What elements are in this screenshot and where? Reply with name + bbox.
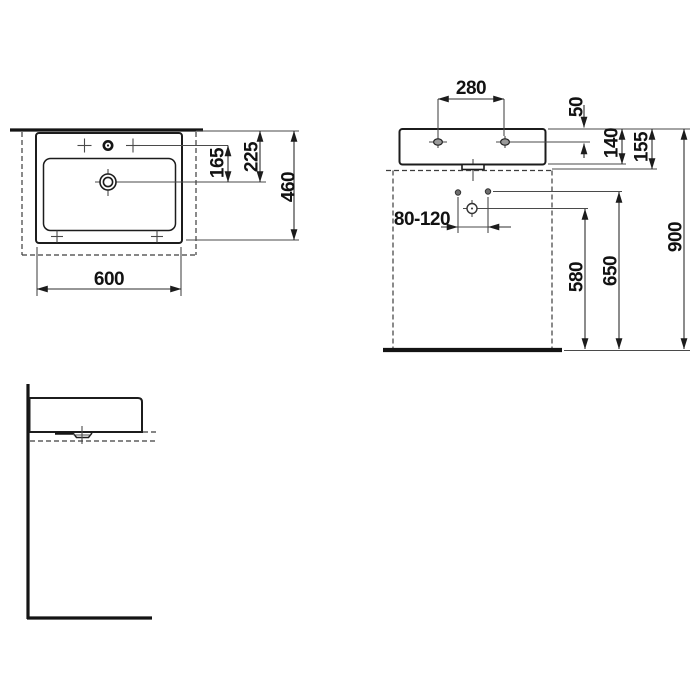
front-drain-tab	[462, 165, 484, 170]
side-basin-profile	[30, 398, 143, 432]
front-fixing-dot-right	[485, 189, 490, 194]
front-dim-label-80120: 80-120	[394, 209, 450, 230]
plan-tap-hole-center-dot	[107, 144, 109, 146]
front-drain-target-dot	[471, 208, 473, 210]
plan-dim-label-165: 165	[208, 147, 229, 178]
front-dim-label-50: 50	[567, 97, 588, 117]
front-fixing-dot-left	[455, 190, 460, 195]
side-view	[27, 384, 159, 619]
front-dim-label-155: 155	[632, 131, 653, 162]
technical-drawing-canvas: 165 225 460 600 280 50 140 155	[0, 0, 700, 700]
front-right-tap-hole-icon	[501, 139, 510, 145]
washbasin-dimension-drawing: 165 225 460 600 280 50 140 155	[0, 0, 700, 700]
front-view: 280 50 140 155	[383, 78, 690, 351]
plan-view: 165 225 460 600	[10, 130, 300, 296]
plan-dim-label-225: 225	[242, 141, 263, 172]
plan-dim-label-460: 460	[279, 172, 300, 202]
front-dim-label-900: 900	[666, 222, 687, 252]
front-dim-label-580: 580	[567, 262, 588, 292]
plan-drain-inner-circle	[103, 177, 112, 186]
front-left-tap-hole-icon	[434, 139, 443, 145]
plan-dim-label-600: 600	[94, 269, 124, 290]
front-dim-label-280: 280	[456, 78, 486, 99]
front-dim-label-140: 140	[602, 128, 623, 158]
front-dim-label-650: 650	[601, 256, 622, 286]
